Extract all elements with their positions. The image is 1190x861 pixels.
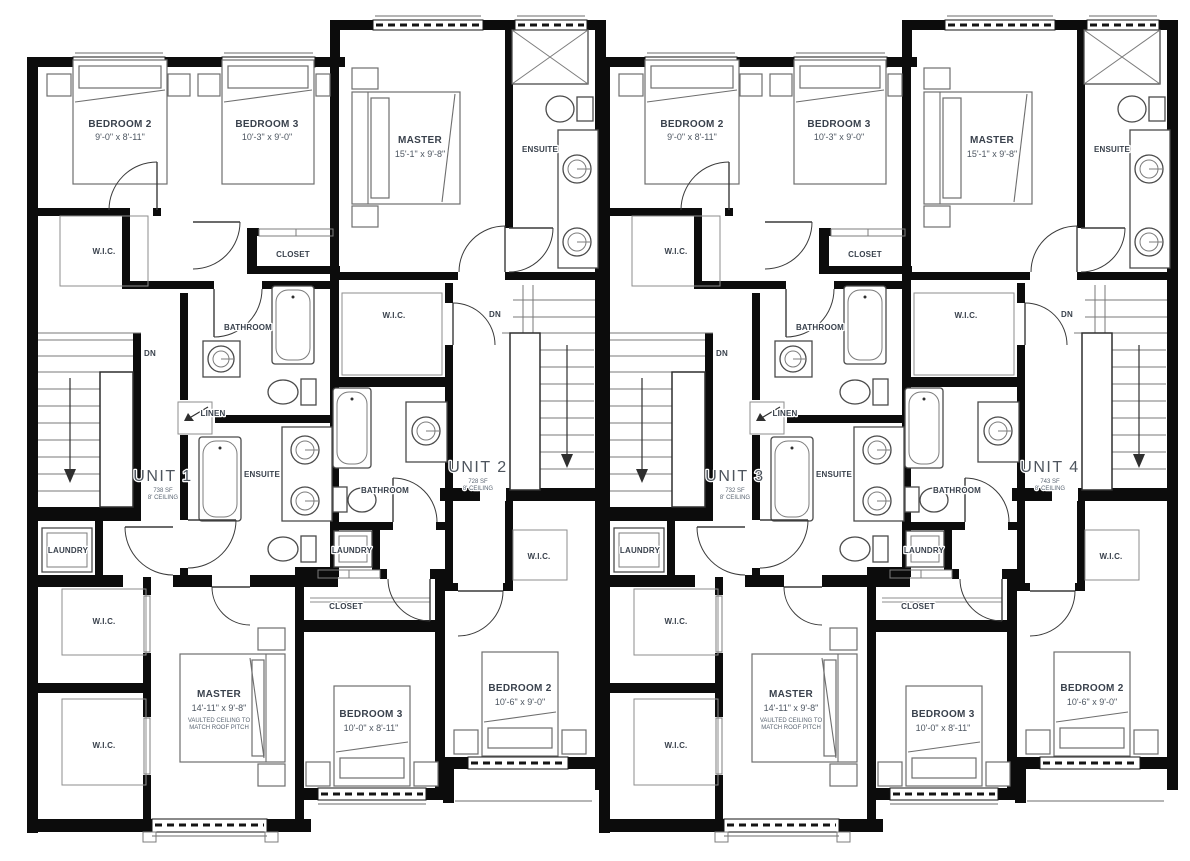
unit2-laundry-label: LAUNDRY (332, 546, 373, 555)
unit4-ceiling: 8' CEILING (1035, 486, 1065, 492)
unit1-bedroom2-dim: 9'-0" x 8'-11" (95, 132, 145, 142)
unit2-bedroom3-label: BEDROOM 3 (339, 709, 402, 720)
unit4-bedroom3-label: BEDROOM 3 (911, 709, 974, 720)
unit1-dn-label: DN (144, 349, 156, 358)
unit3-bedroom3-label: BEDROOM 3 (807, 119, 870, 130)
unit4-master-label: MASTER (970, 135, 1014, 146)
floor-plan-canvas: BEDROOM 2 9'-0" x 8'-11" BEDROOM 3 10'-3… (0, 0, 1190, 861)
unit1-linen-label: LINEN (201, 409, 226, 418)
unit2-master-label: MASTER (398, 135, 442, 146)
unit4-wic-mid-label: W.I.C. (1100, 552, 1123, 561)
unit3-ceiling: 8' CEILING (720, 495, 750, 501)
unit3-master-note2: MATCH ROOF PITCH (761, 725, 821, 731)
unit3-laundry-label: LAUNDRY (620, 546, 661, 555)
unit4-closet-label: CLOSET (901, 602, 935, 611)
unit2-master-dim: 15'-1" x 9'-8" (395, 149, 445, 159)
unit1-area: 738 SF (153, 488, 173, 494)
unit2-bathroom-label: BATHROOM (361, 486, 409, 495)
unit3-wic-top-label: W.I.C. (665, 247, 688, 256)
unit1-wic-bottom-label: W.I.C. (93, 741, 116, 750)
unit4-laundry-label: LAUNDRY (904, 546, 945, 555)
unit1-bedroom3-dim: 10'-3" x 9'-0" (242, 132, 292, 142)
unit1-closet-label: CLOSET (276, 250, 310, 259)
unit2-bedroom3-dim: 10'-0" x 8'-11" (344, 723, 399, 733)
unit4-wic-top-label: W.I.C. (955, 311, 978, 320)
unit3-closet-label: CLOSET (848, 250, 882, 259)
unit3-linen-label: LINEN (773, 409, 798, 418)
unit1-bedroom2-label: BEDROOM 2 (88, 119, 151, 130)
unit1-master-dim: 14'-11" x 9'-8" (192, 703, 247, 713)
unit2-wic-top-label: W.I.C. (383, 311, 406, 320)
unit3-bedroom2-dim: 9'-0" x 8'-11" (667, 132, 717, 142)
unit1-wic-top-label: W.I.C. (93, 247, 116, 256)
unit2-wic-mid-label: W.I.C. (528, 552, 551, 561)
unit1-master-note2: MATCH ROOF PITCH (189, 725, 249, 731)
unit4-bedroom3-dim: 10'-0" x 8'-11" (916, 723, 971, 733)
unit4-bedroom2-label: BEDROOM 2 (1060, 683, 1123, 694)
unit1-ceiling: 8' CEILING (148, 495, 178, 501)
unit4-area: 743 SF (1040, 479, 1060, 485)
unit4-dn-label: DN (1061, 310, 1073, 319)
unit3-master-label: MASTER (769, 689, 813, 700)
unit4-ensuite-label: ENSUITE (1094, 145, 1131, 154)
unit4-bathroom-label: BATHROOM (933, 486, 981, 495)
unit3-title: UNIT 3 (705, 468, 764, 485)
unit1-wic-mid-label: W.I.C. (93, 617, 116, 626)
floor-plan-page: BEDROOM 2 9'-0" x 8'-11" BEDROOM 3 10'-3… (0, 0, 1190, 861)
unit3-master-note1: VAULTED CEILING TO (760, 718, 823, 724)
unit2-bedroom2-dim: 10'-6" x 9'-0" (495, 697, 545, 707)
unit1-laundry-label: LAUNDRY (48, 546, 89, 555)
unit1-bathroom-label: BATHROOM (224, 323, 272, 332)
unit2-bedroom2-label: BEDROOM 2 (488, 683, 551, 694)
unit1-ensuite-label: ENSUITE (244, 470, 281, 479)
unit3-master-dim: 14'-11" x 9'-8" (764, 703, 819, 713)
unit2-area: 728 SF (468, 479, 488, 485)
unit1-title: UNIT 1 (133, 468, 192, 485)
unit2-ensuite-label: ENSUITE (522, 145, 559, 154)
unit2-closet-label: CLOSET (329, 602, 363, 611)
unit4-bedroom2-dim: 10'-6" x 9'-0" (1067, 697, 1117, 707)
unit3-dn-label: DN (716, 349, 728, 358)
unit3-wic-bottom-label: W.I.C. (665, 741, 688, 750)
unit3-bedroom2-label: BEDROOM 2 (660, 119, 723, 130)
unit4-title: UNIT 4 (1020, 459, 1079, 476)
unit3-wic-mid-label: W.I.C. (665, 617, 688, 626)
unit4-master-dim: 15'-1" x 9'-8" (967, 149, 1017, 159)
unit1-master-label: MASTER (197, 689, 241, 700)
unit3-ensuite-label: ENSUITE (816, 470, 853, 479)
unit2-title: UNIT 2 (448, 459, 507, 476)
unit3-bedroom3-dim: 10'-3" x 9'-0" (814, 132, 864, 142)
unit2-ceiling: 8' CEILING (463, 486, 493, 492)
unit1-master-note1: VAULTED CEILING TO (188, 718, 251, 724)
unit3-bathroom-label: BATHROOM (796, 323, 844, 332)
unit3-area: 732 SF (725, 488, 745, 494)
unit1-bedroom3-label: BEDROOM 3 (235, 119, 298, 130)
unit2-dn-label: DN (489, 310, 501, 319)
